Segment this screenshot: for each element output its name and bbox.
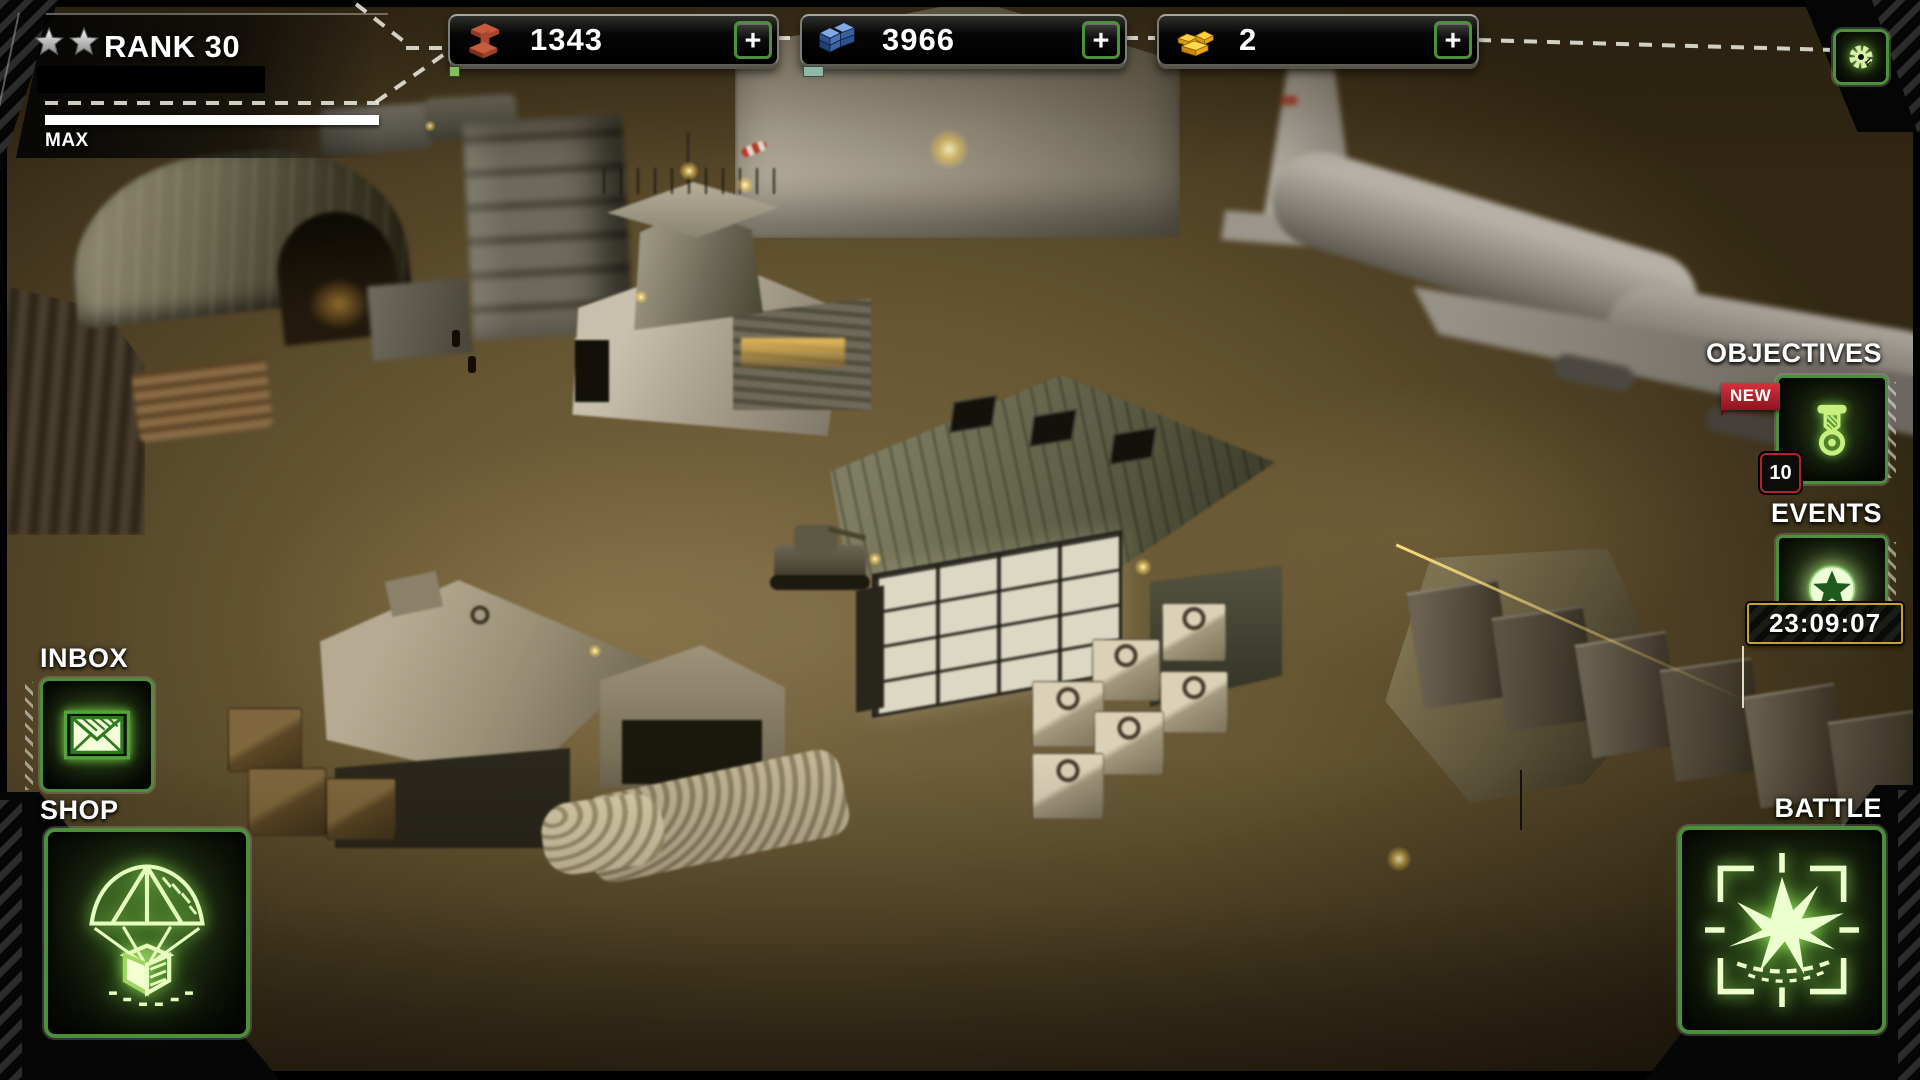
corner-stripes-bottom-left xyxy=(0,800,22,1080)
objectives-count-badge: 10 xyxy=(1760,453,1801,493)
shop-button[interactable] xyxy=(44,828,250,1038)
objectives-label: OBJECTIVES xyxy=(1582,338,1882,369)
rank-star-icon xyxy=(69,27,99,57)
rank-stars xyxy=(34,27,99,57)
add-supplies-button[interactable]: + xyxy=(1082,21,1120,59)
battle-button[interactable] xyxy=(1678,826,1886,1034)
rank-star-icon xyxy=(34,27,64,57)
rank-progress-bar xyxy=(45,115,379,125)
hud-connector-dash xyxy=(1125,36,1155,40)
gold-bars-icon xyxy=(1171,19,1217,61)
rank-dashed-line xyxy=(45,101,379,105)
dof-bottom xyxy=(0,900,1920,1080)
frame-top xyxy=(0,0,1920,7)
supplies-value: 3966 xyxy=(882,22,955,58)
resource-gold: 2 + xyxy=(1157,14,1479,66)
inbox-deco-ticks xyxy=(25,682,33,790)
objectives-new-badge: NEW xyxy=(1721,383,1780,410)
add-steel-button[interactable]: + xyxy=(734,21,772,59)
corner-stripes-bottom-right xyxy=(1898,790,1920,1080)
events-label: EVENTS xyxy=(1582,498,1882,529)
frame-bottom xyxy=(0,1071,1920,1080)
inbox-button[interactable] xyxy=(40,678,154,792)
light-pole xyxy=(1742,646,1744,708)
steel-beam-icon xyxy=(462,19,508,61)
supplies-capacity-tick xyxy=(803,66,824,77)
rank-panel: RANK 30 MAX xyxy=(16,13,388,158)
rank-subpanel xyxy=(37,66,265,93)
rank-label: RANK 30 xyxy=(104,29,240,65)
game-screen: RANK 30 MAX 1343 + 3966 + 2 + xyxy=(0,0,1920,1080)
supply-crates-icon xyxy=(814,19,860,61)
add-gold-button[interactable]: + xyxy=(1434,21,1472,59)
envelope-icon xyxy=(58,696,136,774)
steel-capacity-tick xyxy=(449,66,460,77)
steel-value: 1343 xyxy=(530,22,603,58)
hud-connector-dash xyxy=(406,46,446,50)
shop-label: SHOP xyxy=(40,795,119,826)
settings-button[interactable] xyxy=(1833,29,1889,85)
explosion-crosshair-icon xyxy=(1698,846,1866,1014)
airdrop-icon xyxy=(71,857,223,1009)
gold-value: 2 xyxy=(1239,22,1257,58)
resource-steel: 1343 + xyxy=(448,14,779,66)
resource-supplies: 3966 + xyxy=(800,14,1127,66)
objectives-deco-ticks xyxy=(1888,382,1896,478)
events-timer: 23:09:07 xyxy=(1747,603,1903,644)
battle-label: BATTLE xyxy=(1582,793,1882,824)
base-3d-scene xyxy=(0,0,1920,1080)
hud-connector-dash xyxy=(777,36,799,40)
rank-max-label: MAX xyxy=(45,130,89,152)
gear-icon xyxy=(1845,41,1877,73)
inbox-label: INBOX xyxy=(40,643,128,674)
medal-icon xyxy=(1801,399,1863,461)
